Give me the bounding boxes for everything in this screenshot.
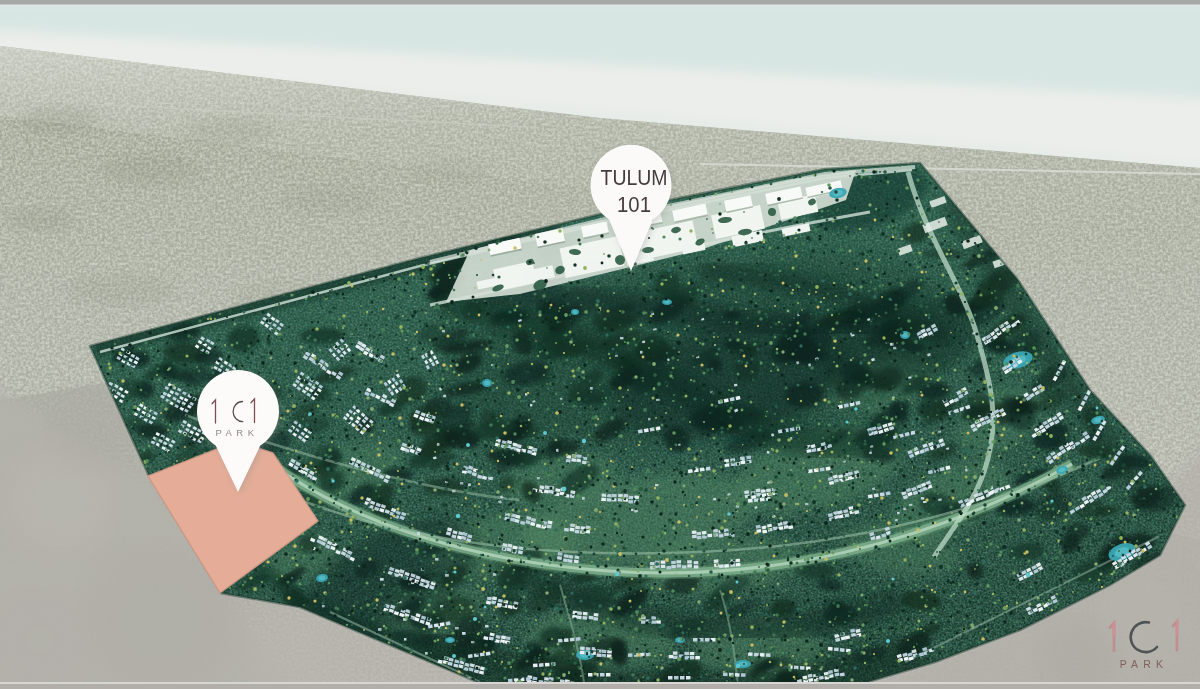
svg-text:PARK: PARK <box>215 427 258 438</box>
svg-text:PARK: PARK <box>1120 658 1169 670</box>
svg-text:TULUM: TULUM <box>601 166 668 190</box>
svg-text:101: 101 <box>617 193 651 217</box>
